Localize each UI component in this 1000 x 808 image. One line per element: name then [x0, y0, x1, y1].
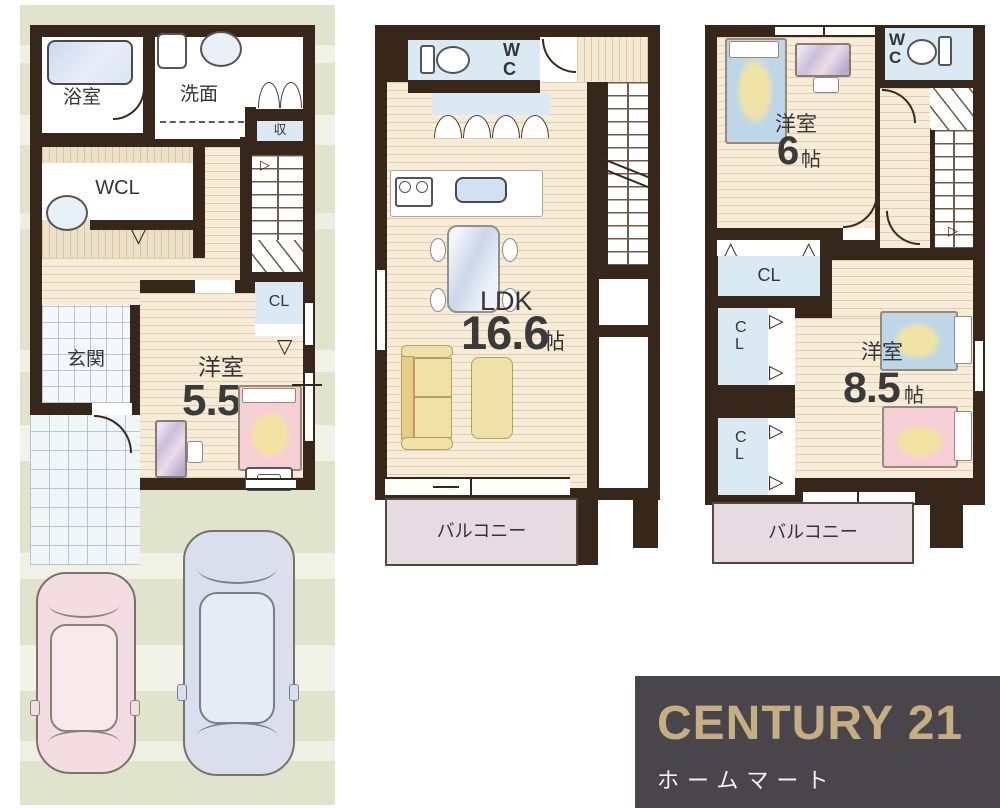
washroom-floor-lower — [155, 107, 245, 139]
window — [246, 478, 296, 490]
door-opening — [195, 280, 235, 293]
car-blue-windshield — [197, 722, 277, 750]
car-pink-rear-glass — [48, 590, 120, 618]
toilet-tank — [420, 45, 435, 74]
toilet-bowl — [907, 39, 937, 65]
toilet-tank — [938, 36, 952, 66]
bed-pillow — [729, 41, 779, 58]
car-blue — [183, 530, 295, 776]
bedroom-8-5-name: 洋室 — [861, 341, 903, 364]
wall — [130, 305, 140, 405]
closet-wide-label: CL — [718, 266, 820, 286]
window-tick — [292, 384, 322, 386]
window — [375, 270, 387, 350]
wall — [193, 147, 205, 223]
washroom-dashed-line — [160, 121, 244, 123]
folding-door-icon — [769, 363, 784, 382]
wall-stub — [578, 493, 598, 565]
balcony-window — [385, 477, 570, 497]
car-blue-cabin — [199, 592, 275, 724]
wall-stub — [633, 493, 658, 548]
wall — [245, 109, 303, 121]
bed-pillow — [954, 411, 972, 461]
bedroom-8-5-size: 8.5 — [843, 365, 900, 412]
floor2-plan: WC LDK 16.6 帖 — [375, 25, 660, 500]
closet-folding-door-icon — [277, 336, 292, 356]
balcony-2f-label: バルコニー — [385, 522, 578, 542]
storage-label: 収 — [257, 123, 303, 137]
dining-chair — [430, 238, 446, 262]
sofa-armrest — [401, 437, 453, 450]
window — [303, 303, 315, 345]
wall — [930, 248, 978, 260]
stairs-3f-winder — [930, 88, 973, 130]
brand-name: CENTURY 21 — [657, 696, 1000, 751]
door-opening — [843, 228, 875, 240]
bed-single — [882, 406, 958, 468]
stairs-arrow-icon — [260, 159, 270, 172]
wall — [597, 82, 608, 265]
kitchen-sink — [455, 177, 507, 203]
toilet-bowl — [436, 46, 470, 74]
washing-machine — [157, 33, 187, 69]
wall — [718, 385, 768, 418]
car-blue-mirror — [289, 684, 299, 701]
floor3-plan: 洋室 6 帖 WC CL CL — [705, 25, 985, 505]
stove-burner — [399, 181, 411, 193]
lounge-chair — [471, 357, 513, 439]
wcl-folding-door-icon — [130, 225, 147, 247]
bedroom-6-size: 6 — [777, 129, 798, 173]
wall — [408, 80, 540, 93]
desk-chair — [187, 441, 203, 463]
wall — [718, 296, 820, 308]
wash-sink — [200, 31, 242, 67]
sofa-back — [401, 356, 414, 439]
wall — [240, 137, 252, 278]
wall — [597, 265, 648, 279]
wcl-sink — [46, 195, 88, 231]
folding-door-icon — [769, 473, 784, 492]
window-divider — [823, 25, 825, 37]
wall-stub — [930, 492, 963, 548]
car-blue-rear-glass — [197, 552, 277, 584]
dining-chair — [502, 238, 518, 262]
ldk-unit: 帖 — [543, 330, 565, 354]
folding-door-icon — [769, 422, 784, 441]
car-pink-windshield — [48, 730, 120, 756]
wall — [245, 141, 303, 155]
sofa-seat — [414, 358, 452, 438]
genkan-label: 玄関 — [42, 350, 130, 371]
desk — [155, 420, 187, 478]
sofa-cushion-line — [414, 396, 452, 398]
dining-chair — [430, 288, 446, 312]
kitchen-cupboard-counter — [432, 93, 550, 115]
stairs-arrow-icon — [948, 225, 958, 238]
wall — [875, 28, 885, 80]
brand-subtitle: ホームマート — [657, 763, 1000, 795]
window-tick — [433, 486, 459, 488]
bathtub — [47, 40, 133, 85]
wall-stub — [587, 325, 648, 337]
car-blue-mirror — [177, 684, 187, 701]
bathroom-label: 浴室 — [63, 88, 101, 109]
window — [973, 341, 985, 391]
car-pink — [36, 572, 136, 774]
front-door-opening — [92, 403, 132, 415]
closet-column-label: CL — [735, 430, 751, 464]
balcony-3f-label: バルコニー — [712, 523, 914, 543]
car-pink-mirror — [30, 700, 40, 716]
stairs-landing — [577, 37, 648, 82]
bedroom-6-unit: 帖 — [801, 149, 821, 171]
washroom-label: 洗面 — [180, 85, 218, 106]
window-divider — [470, 477, 472, 497]
stairwell-void — [599, 279, 648, 488]
desk-chair — [813, 77, 839, 93]
floorplan-image: 浴室 洗面 収 WCL — [0, 0, 1000, 808]
stairs-rail — [277, 155, 279, 240]
desk — [795, 43, 851, 77]
wall — [243, 272, 303, 282]
stairs-rail — [627, 82, 629, 265]
folding-door-icon — [769, 312, 784, 331]
closet-column-label: CL — [735, 320, 751, 354]
bedroom-5-5-size: 5.5 — [182, 377, 240, 425]
bed-pillow — [954, 316, 972, 364]
car-pink-cabin — [50, 624, 118, 732]
wc-label-3f: WC — [889, 31, 906, 67]
wc-label-2f: WC — [503, 41, 521, 79]
bedroom-8-5-unit: 帖 — [904, 385, 924, 407]
stove-burner — [416, 181, 428, 193]
closet-1f-label: CL — [255, 293, 303, 311]
century21-logo: CENTURY 21 ホームマート — [635, 676, 1000, 808]
window — [775, 25, 875, 37]
car-pink-mirror — [130, 700, 140, 716]
ldk-size: 16.6 — [461, 307, 548, 359]
bed-pillow — [242, 388, 296, 403]
